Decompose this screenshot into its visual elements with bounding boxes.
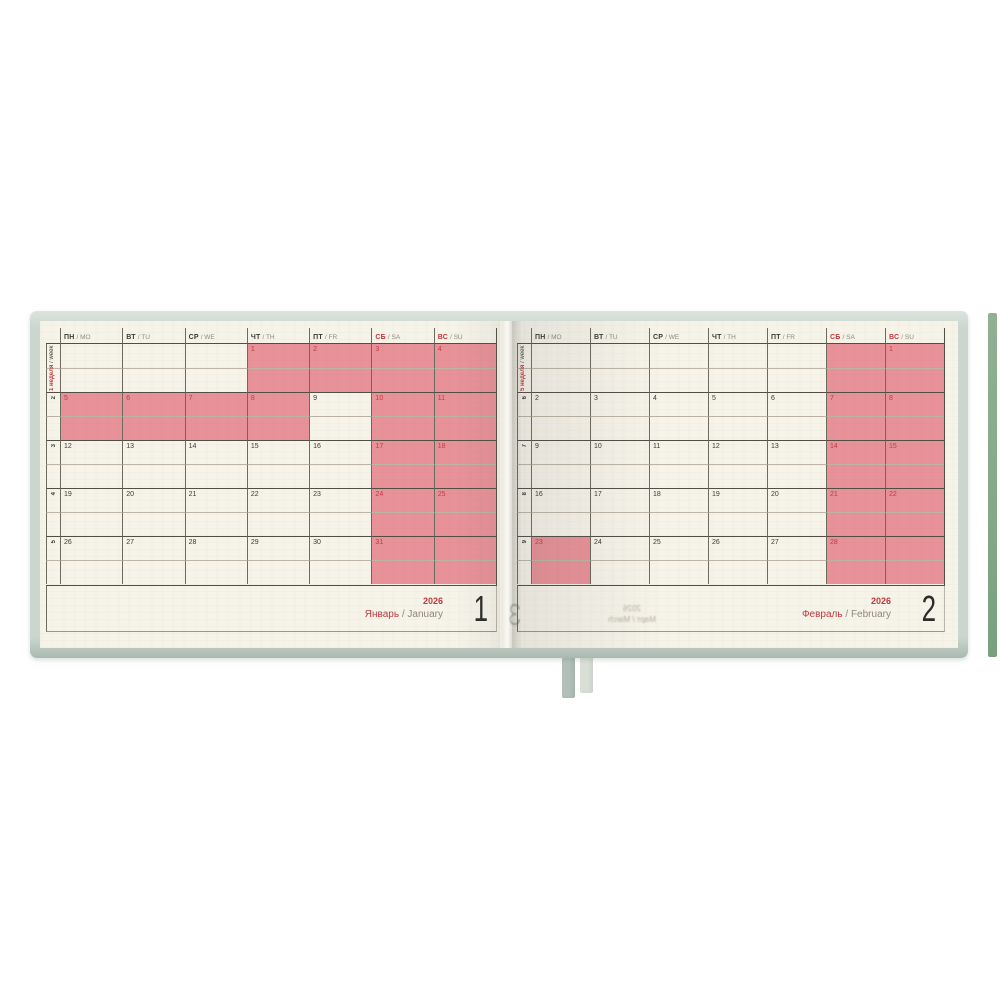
day-cell: 1 xyxy=(247,344,309,368)
day-header-mo: ПН/ MO xyxy=(531,328,590,344)
month-caption: 2026 Январь / January xyxy=(365,596,443,621)
day-cell: 2 xyxy=(309,344,371,368)
day-cell: 8 xyxy=(885,392,944,416)
day-cell xyxy=(767,344,826,368)
day-number: 12 xyxy=(64,443,72,450)
day-abbr-ru: ПН xyxy=(535,334,546,341)
day-number: 16 xyxy=(313,443,321,450)
day-number: 22 xyxy=(889,491,897,498)
day-cell: 11 xyxy=(434,392,496,416)
day-number: 4 xyxy=(438,346,442,353)
day-cell xyxy=(531,344,590,368)
day-cell-lower xyxy=(185,416,247,440)
day-number: 15 xyxy=(889,443,897,450)
day-number: 14 xyxy=(830,443,838,450)
day-header-fr: ПТ/ FR xyxy=(767,328,826,344)
day-number: 27 xyxy=(126,539,134,546)
day-cell-lower xyxy=(434,560,496,584)
day-cell-lower xyxy=(60,464,122,488)
day-cell: 14 xyxy=(826,440,885,464)
day-number: 14 xyxy=(189,443,197,450)
day-number: 25 xyxy=(653,539,661,546)
calendar-grid-february: ПН/ MOВТ/ TUСР/ WEЧТ/ THПТ/ FRСБ/ SAВС/ … xyxy=(517,328,945,586)
day-abbr-ru: ЧТ xyxy=(712,334,722,341)
day-abbr-en: / FR xyxy=(783,335,795,342)
week-margin: 3 xyxy=(46,440,60,464)
day-cell-lower xyxy=(708,464,767,488)
day-cell: 31 xyxy=(371,536,433,560)
table-corner xyxy=(46,328,60,344)
day-cell: 21 xyxy=(826,488,885,512)
day-cell: 26 xyxy=(708,536,767,560)
week-number: 2 xyxy=(51,396,57,399)
day-cell: 17 xyxy=(590,488,649,512)
day-header-sa: СБ/ SA xyxy=(371,328,433,344)
week-margin: 9 xyxy=(517,536,531,560)
day-abbr-en: / TU xyxy=(138,335,150,342)
day-cell-lower xyxy=(708,416,767,440)
day-cell: 15 xyxy=(885,440,944,464)
day-cell-lower xyxy=(649,368,708,392)
day-cell xyxy=(185,344,247,368)
day-number: 7 xyxy=(830,395,834,402)
day-cell-lower xyxy=(371,512,433,536)
day-cell: 12 xyxy=(60,440,122,464)
month-number: 2 xyxy=(922,591,936,627)
day-cell-lower xyxy=(309,416,371,440)
day-abbr-ru: ВС xyxy=(438,334,448,341)
day-cell-lower xyxy=(185,512,247,536)
week-margin: 2 xyxy=(46,392,60,416)
day-header-th: ЧТ/ TH xyxy=(247,328,309,344)
day-cell: 1 xyxy=(885,344,944,368)
day-number: 20 xyxy=(771,491,779,498)
day-cell-lower xyxy=(531,512,590,536)
day-header-su: ВС/ SU xyxy=(434,328,496,344)
day-cell: 5 xyxy=(60,392,122,416)
day-number: 3 xyxy=(594,395,598,402)
day-cell: 6 xyxy=(767,392,826,416)
month-footer-february: 2026 Февраль / February 2 xyxy=(517,586,945,632)
table-corner xyxy=(517,328,531,344)
day-number: 1 xyxy=(889,346,893,353)
day-number: 5 xyxy=(64,395,68,402)
day-cell-lower xyxy=(434,368,496,392)
day-cell-lower xyxy=(649,560,708,584)
day-number: 17 xyxy=(594,491,602,498)
day-cell-lower xyxy=(590,368,649,392)
day-cell-lower xyxy=(767,416,826,440)
day-cell-lower xyxy=(309,560,371,584)
week-number: 7 xyxy=(522,444,528,447)
day-cell-lower xyxy=(531,464,590,488)
day-cell-lower xyxy=(708,560,767,584)
day-cell: 18 xyxy=(434,440,496,464)
day-abbr-en: / FR xyxy=(325,335,337,342)
day-cell: 7 xyxy=(826,392,885,416)
day-abbr-ru: СР xyxy=(189,334,199,341)
day-cell: 5 xyxy=(708,392,767,416)
day-cell-lower xyxy=(649,416,708,440)
day-cell: 15 xyxy=(247,440,309,464)
day-number: 4 xyxy=(653,395,657,402)
day-cell-lower xyxy=(185,464,247,488)
day-cell: 10 xyxy=(590,440,649,464)
pages-area: ПН/ MOВТ/ TUСР/ WEЧТ/ THПТ/ FRСБ/ SAВС/ … xyxy=(40,321,958,648)
day-number: 9 xyxy=(535,443,539,450)
day-cell: 19 xyxy=(708,488,767,512)
product-photo-background: ПН/ MOВТ/ TUСР/ WEЧТ/ THПТ/ FRСБ/ SAВС/ … xyxy=(0,0,1000,1000)
day-cell-lower xyxy=(371,464,433,488)
day-cell: 16 xyxy=(531,488,590,512)
day-cell: 14 xyxy=(185,440,247,464)
day-cell: 4 xyxy=(649,392,708,416)
day-abbr-ru: ВС xyxy=(889,334,899,341)
day-cell: 20 xyxy=(767,488,826,512)
day-cell: 23 xyxy=(309,488,371,512)
day-header-mo: ПН/ MO xyxy=(60,328,122,344)
day-number: 8 xyxy=(251,395,255,402)
week-margin-lower xyxy=(517,560,531,584)
day-number: 28 xyxy=(830,539,838,546)
day-cell-lower xyxy=(185,560,247,584)
day-cell: 26 xyxy=(60,536,122,560)
day-number: 31 xyxy=(375,539,383,546)
calendar-grid-january: ПН/ MOВТ/ TUСР/ WEЧТ/ THПТ/ FRСБ/ SAВС/ … xyxy=(46,328,497,586)
year-label: 2026 xyxy=(365,596,443,608)
day-abbr-ru: ПТ xyxy=(313,334,323,341)
day-number: 24 xyxy=(375,491,383,498)
day-cell-lower xyxy=(434,416,496,440)
day-abbr-en: / MO xyxy=(77,335,91,342)
day-cell-lower xyxy=(885,560,944,584)
day-cell-lower xyxy=(122,512,184,536)
day-cell-lower xyxy=(309,464,371,488)
day-number: 21 xyxy=(830,491,838,498)
month-name: Январь / January xyxy=(365,608,443,621)
day-cell-lower xyxy=(371,560,433,584)
day-cell-lower xyxy=(122,368,184,392)
week-margin: 4 xyxy=(46,488,60,512)
day-abbr-en: / TH xyxy=(262,335,274,342)
day-header-sa: СБ/ SA xyxy=(826,328,885,344)
day-cell-lower xyxy=(826,512,885,536)
day-cell: 7 xyxy=(185,392,247,416)
day-header-tu: ВТ/ TU xyxy=(590,328,649,344)
day-cell xyxy=(122,344,184,368)
week-number: 6 xyxy=(522,396,528,399)
day-cell-lower xyxy=(531,416,590,440)
day-abbr-ru: СБ xyxy=(375,334,386,341)
back-cover-edge xyxy=(988,313,997,657)
day-number: 18 xyxy=(438,443,446,450)
day-header-su: ВС/ SU xyxy=(885,328,944,344)
day-cell-lower xyxy=(590,512,649,536)
day-cell-lower xyxy=(649,464,708,488)
day-number: 11 xyxy=(438,395,445,402)
day-number: 16 xyxy=(535,491,543,498)
day-abbr-en: / WE xyxy=(201,335,215,342)
day-abbr-ru: СБ xyxy=(830,334,841,341)
day-header-we: СР/ WE xyxy=(185,328,247,344)
day-abbr-en: / SA xyxy=(388,335,400,342)
week-margin: 5 неделя / week xyxy=(517,344,531,368)
day-cell xyxy=(649,344,708,368)
day-number: 25 xyxy=(438,491,446,498)
day-cell-lower xyxy=(885,416,944,440)
day-number: 6 xyxy=(771,395,775,402)
day-cell: 3 xyxy=(590,392,649,416)
day-cell: 22 xyxy=(247,488,309,512)
week-margin-lower xyxy=(517,416,531,440)
day-cell-lower xyxy=(434,464,496,488)
day-number: 21 xyxy=(189,491,197,498)
day-number: 13 xyxy=(771,443,779,450)
day-cell xyxy=(708,344,767,368)
day-cell-lower xyxy=(767,464,826,488)
day-cell xyxy=(60,344,122,368)
day-cell-lower xyxy=(708,368,767,392)
month-footer-january: 2026 Январь / January 1 xyxy=(46,586,497,632)
day-number: 11 xyxy=(653,443,660,450)
day-cell-lower xyxy=(649,512,708,536)
day-cell-lower xyxy=(590,464,649,488)
week-margin: 1 неделя / week xyxy=(46,344,60,368)
day-cell: 28 xyxy=(185,536,247,560)
day-cell-lower xyxy=(708,512,767,536)
day-number: 5 xyxy=(712,395,716,402)
day-cell-lower xyxy=(434,512,496,536)
month-number: 1 xyxy=(474,591,488,627)
day-number: 10 xyxy=(375,395,383,402)
day-number: 30 xyxy=(313,539,321,546)
day-number: 17 xyxy=(375,443,383,450)
day-cell-lower xyxy=(531,560,590,584)
day-cell: 23 xyxy=(531,536,590,560)
day-cell-lower xyxy=(122,416,184,440)
month-caption: 2026 Февраль / February xyxy=(802,596,891,621)
day-header-th: ЧТ/ TH xyxy=(708,328,767,344)
week-margin-lower xyxy=(46,416,60,440)
day-number: 26 xyxy=(64,539,72,546)
day-cell-lower xyxy=(590,560,649,584)
day-cell: 21 xyxy=(185,488,247,512)
day-cell-lower xyxy=(60,368,122,392)
day-number: 23 xyxy=(535,539,543,546)
day-abbr-en: / TH xyxy=(724,335,736,342)
day-cell xyxy=(434,536,496,560)
week-margin-lower xyxy=(46,560,60,584)
day-cell: 18 xyxy=(649,488,708,512)
day-abbr-ru: ПТ xyxy=(771,334,781,341)
month-name-ru: Февраль xyxy=(802,609,843,620)
day-cell-lower xyxy=(826,416,885,440)
week-margin: 8 xyxy=(517,488,531,512)
day-number: 27 xyxy=(771,539,779,546)
day-cell: 17 xyxy=(371,440,433,464)
separator: / xyxy=(845,609,848,620)
day-cell-lower xyxy=(767,560,826,584)
day-cell: 3 xyxy=(371,344,433,368)
day-cell: 25 xyxy=(434,488,496,512)
day-cell-lower xyxy=(885,464,944,488)
week-margin-lower xyxy=(517,512,531,536)
day-cell: 24 xyxy=(371,488,433,512)
week-margin: 7 xyxy=(517,440,531,464)
day-abbr-ru: ЧТ xyxy=(251,334,261,341)
day-cell-lower xyxy=(247,416,309,440)
day-number: 28 xyxy=(189,539,197,546)
day-abbr-en: / SA xyxy=(843,335,855,342)
day-cell-lower xyxy=(885,512,944,536)
week-margin-lower xyxy=(517,464,531,488)
day-cell: 29 xyxy=(247,536,309,560)
day-cell-lower xyxy=(60,560,122,584)
month-name-en: January xyxy=(407,609,443,620)
day-number: 8 xyxy=(889,395,893,402)
month-name-ru: Январь xyxy=(365,609,399,620)
week-margin: 6 xyxy=(517,392,531,416)
year-label: 2026 xyxy=(802,596,891,608)
day-cell-lower xyxy=(826,560,885,584)
day-header-fr: ПТ/ FR xyxy=(309,328,371,344)
day-cell: 2 xyxy=(531,392,590,416)
day-cell: 25 xyxy=(649,536,708,560)
day-number: 22 xyxy=(251,491,259,498)
day-cell-lower xyxy=(590,416,649,440)
week-label: 5 неделя / week xyxy=(520,345,526,391)
day-abbr-ru: ВТ xyxy=(126,334,135,341)
day-number: 13 xyxy=(126,443,134,450)
day-cell: 9 xyxy=(309,392,371,416)
day-cell-lower xyxy=(247,464,309,488)
day-cell: 10 xyxy=(371,392,433,416)
day-cell-lower xyxy=(122,560,184,584)
day-cell-lower xyxy=(60,512,122,536)
day-number: 7 xyxy=(189,395,193,402)
day-cell: 20 xyxy=(122,488,184,512)
day-number: 26 xyxy=(712,539,720,546)
day-cell: 12 xyxy=(708,440,767,464)
day-abbr-en: / SU xyxy=(450,335,463,342)
day-cell: 13 xyxy=(767,440,826,464)
day-number: 1 xyxy=(251,346,255,353)
day-cell-lower xyxy=(185,368,247,392)
day-abbr-en: / TU xyxy=(605,335,617,342)
separator: / xyxy=(402,609,405,620)
day-abbr-en: / WE xyxy=(665,335,679,342)
month-name-en: February xyxy=(851,609,891,620)
day-cell: 19 xyxy=(60,488,122,512)
day-cell: 22 xyxy=(885,488,944,512)
day-header-tu: ВТ/ TU xyxy=(122,328,184,344)
day-number: 9 xyxy=(313,395,317,402)
day-cell-lower xyxy=(122,464,184,488)
day-cell-lower xyxy=(531,368,590,392)
day-cell: 27 xyxy=(767,536,826,560)
week-number: 3 xyxy=(51,444,57,447)
day-number: 23 xyxy=(313,491,321,498)
open-planner-book: ПН/ MOВТ/ TUСР/ WEЧТ/ THПТ/ FRСБ/ SAВС/ … xyxy=(30,311,968,658)
day-abbr-ru: СР xyxy=(653,334,663,341)
day-cell: 11 xyxy=(649,440,708,464)
day-number: 15 xyxy=(251,443,259,450)
week-margin-lower xyxy=(46,512,60,536)
day-number: 10 xyxy=(594,443,602,450)
day-number: 6 xyxy=(126,395,130,402)
day-cell-lower xyxy=(767,368,826,392)
day-abbr-en: / SU xyxy=(901,335,914,342)
day-cell xyxy=(826,344,885,368)
day-number: 24 xyxy=(594,539,602,546)
week-number: 9 xyxy=(522,540,528,543)
day-cell: 13 xyxy=(122,440,184,464)
day-header-we: СР/ WE xyxy=(649,328,708,344)
day-abbr-ru: ВТ xyxy=(594,334,603,341)
day-cell: 4 xyxy=(434,344,496,368)
day-number: 2 xyxy=(535,395,539,402)
month-name: Февраль / February xyxy=(802,608,891,621)
day-cell xyxy=(885,536,944,560)
day-cell: 30 xyxy=(309,536,371,560)
day-cell-lower xyxy=(60,416,122,440)
week-margin-lower xyxy=(46,464,60,488)
day-cell-lower xyxy=(309,512,371,536)
day-cell-lower xyxy=(309,368,371,392)
week-margin: 5 xyxy=(46,536,60,560)
day-number: 12 xyxy=(712,443,720,450)
day-cell-lower xyxy=(371,368,433,392)
day-cell-lower xyxy=(247,560,309,584)
day-cell: 28 xyxy=(826,536,885,560)
week-number: 5 xyxy=(51,540,57,543)
day-cell-lower xyxy=(767,512,826,536)
day-cell: 27 xyxy=(122,536,184,560)
day-abbr-en: / MO xyxy=(548,335,562,342)
day-cell-lower xyxy=(371,416,433,440)
day-number: 20 xyxy=(126,491,134,498)
day-number: 18 xyxy=(653,491,661,498)
page-january: ПН/ MOВТ/ TUСР/ WEЧТ/ THПТ/ FRСБ/ SAВС/ … xyxy=(40,321,500,648)
day-number: 19 xyxy=(712,491,720,498)
day-number: 3 xyxy=(375,346,379,353)
week-number: 8 xyxy=(522,492,528,495)
day-cell: 6 xyxy=(122,392,184,416)
day-cell: 16 xyxy=(309,440,371,464)
day-cell: 9 xyxy=(531,440,590,464)
day-cell: 24 xyxy=(590,536,649,560)
day-cell-lower xyxy=(247,368,309,392)
day-number: 2 xyxy=(313,346,317,353)
day-cell-lower xyxy=(826,464,885,488)
day-number: 19 xyxy=(64,491,72,498)
day-abbr-ru: ПН xyxy=(64,334,75,341)
week-number: 4 xyxy=(51,492,57,495)
day-cell-lower xyxy=(885,368,944,392)
day-cell-lower xyxy=(826,368,885,392)
day-cell-lower xyxy=(247,512,309,536)
week-label: 1 неделя / week xyxy=(49,345,55,391)
day-cell: 8 xyxy=(247,392,309,416)
day-cell xyxy=(590,344,649,368)
page-february: ПН/ MOВТ/ TUСР/ WEЧТ/ THПТ/ FRСБ/ SAВС/ … xyxy=(512,321,958,648)
day-number: 29 xyxy=(251,539,259,546)
